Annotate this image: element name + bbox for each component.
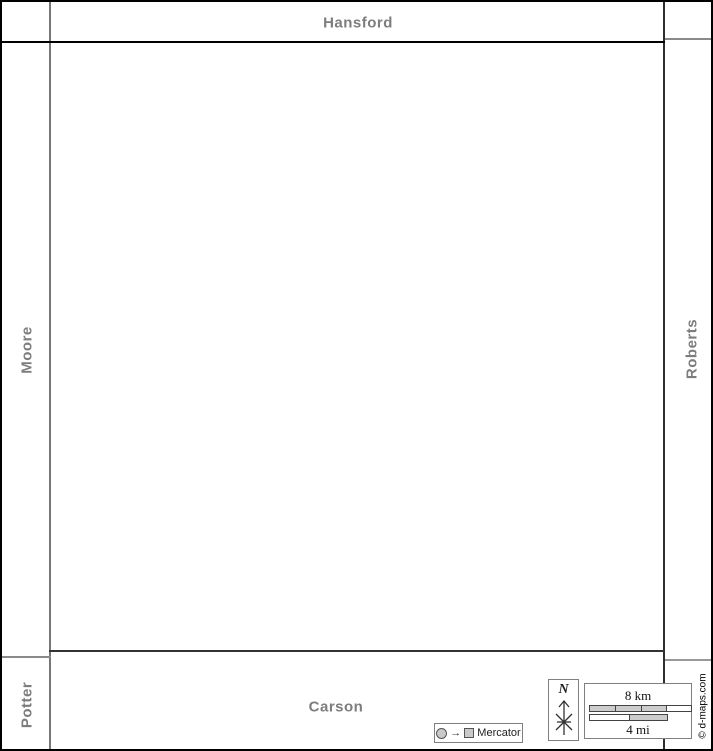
scale-km-label: 8 km xyxy=(585,689,691,702)
scale-mi-label: 4 mi xyxy=(585,723,691,736)
arrow-right-icon: → xyxy=(450,728,461,739)
scale-tick xyxy=(615,706,616,711)
projection-label: Mercator xyxy=(477,727,520,739)
left-column-separator-line xyxy=(2,656,51,658)
scale-bar-km xyxy=(589,705,692,712)
right-column-separator-line xyxy=(665,659,713,661)
neighbor-label-top: Hansford xyxy=(323,15,393,32)
projection-panel: → Mercator xyxy=(434,723,523,743)
neighbor-label-bottom: Carson xyxy=(309,699,364,716)
scale-panel: 8 km 4 mi xyxy=(584,683,692,739)
scale-tick xyxy=(641,706,642,711)
scale-bar-mi xyxy=(589,714,668,721)
left-column-boundary-line xyxy=(49,2,51,751)
top-band-boundary-line xyxy=(2,41,665,43)
scale-tick xyxy=(666,706,667,711)
north-arrow-icon xyxy=(551,697,577,739)
scale-bar-km-fill xyxy=(590,706,666,711)
blank-county-map: Hansford Moore Roberts Potter Carson N 8… xyxy=(0,0,713,751)
neighbor-label-left: Moore xyxy=(19,326,36,374)
neighbor-label-bottom-left: Potter xyxy=(19,682,36,728)
top-right-corner-separator-line xyxy=(665,38,713,40)
scale-tick xyxy=(629,715,630,720)
scale-bar-mi-fill xyxy=(629,715,668,720)
credit-text: © d-maps.com xyxy=(698,673,709,738)
right-column-boundary-line xyxy=(663,2,665,751)
neighbor-label-right: Roberts xyxy=(684,319,701,379)
map-bottom-boundary-line xyxy=(49,650,665,652)
flat-map-square-icon xyxy=(464,728,474,738)
globe-circle-icon xyxy=(436,728,447,739)
compass-panel: N xyxy=(548,679,579,741)
compass-north-label: N xyxy=(558,683,568,697)
